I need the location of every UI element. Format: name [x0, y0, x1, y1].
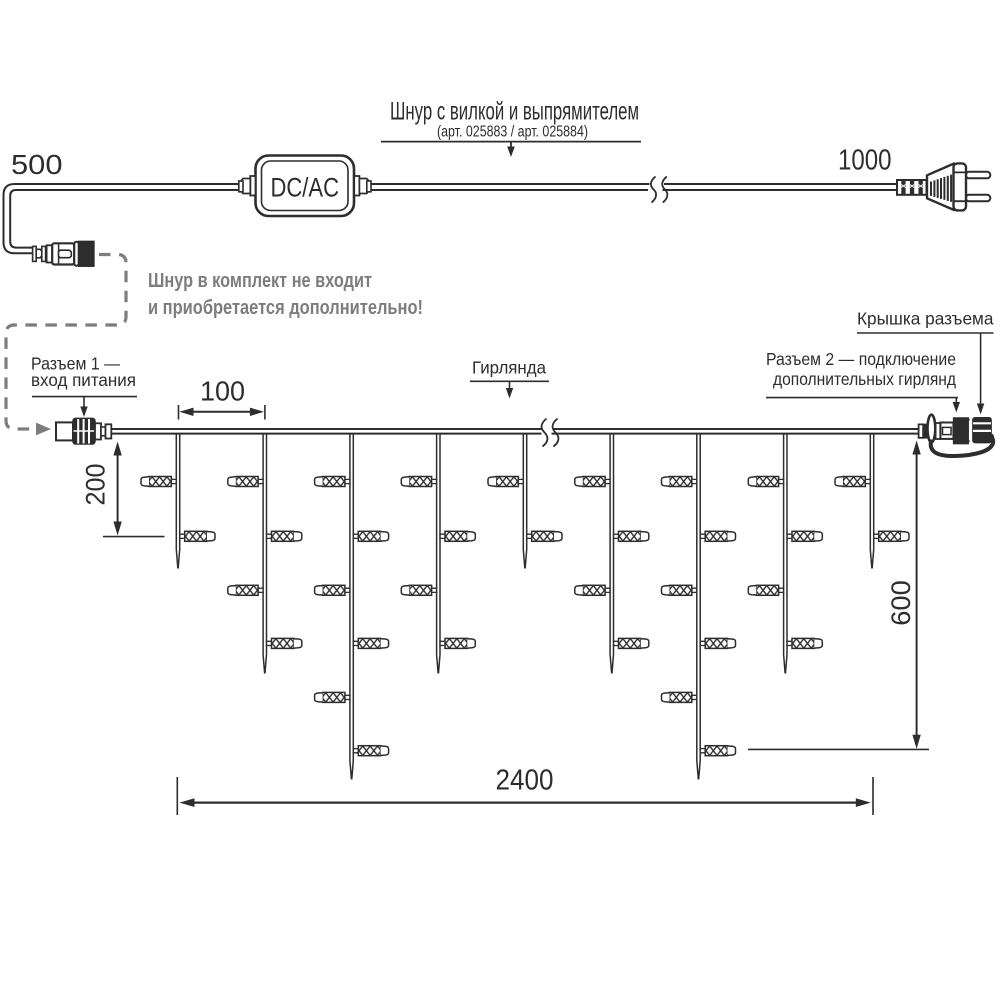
svg-text:Гирлянда: Гирлянда — [472, 357, 546, 377]
svg-text:и приобретается дополнительно!: и приобретается дополнительно! — [148, 297, 423, 319]
svg-text:200: 200 — [80, 464, 110, 506]
svg-text:Крышка разъема: Крышка разъема — [857, 308, 994, 328]
svg-text:DC/AC: DC/AC — [271, 173, 340, 203]
svg-text:600: 600 — [886, 580, 916, 626]
svg-text:2400: 2400 — [496, 765, 554, 797]
svg-text:500: 500 — [11, 149, 63, 180]
svg-text:дополнительных гирлянд: дополнительных гирлянд — [773, 369, 956, 389]
svg-text:вход питания: вход питания — [31, 370, 136, 390]
svg-text:100: 100 — [200, 375, 245, 406]
svg-text:Разъем 2 — подключение: Разъем 2 — подключение — [766, 349, 956, 369]
svg-text:1000: 1000 — [838, 145, 892, 177]
svg-text:Шнур в комплект не входит: Шнур в комплект не входит — [148, 270, 372, 292]
svg-text:Шнур с вилкой и выпрямителем: Шнур с вилкой и выпрямителем — [390, 98, 639, 126]
svg-text:(арт. 025883 / арт. 025884): (арт. 025883 / арт. 025884) — [437, 124, 588, 141]
